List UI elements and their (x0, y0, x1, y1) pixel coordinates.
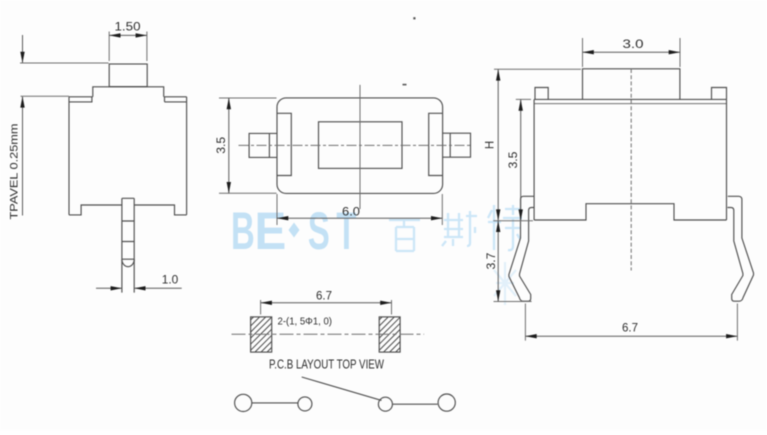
svg-text:3.5: 3.5 (508, 152, 520, 169)
svg-text:E: E (255, 201, 287, 261)
svg-text:H: H (485, 141, 497, 149)
svg-text:S: S (308, 202, 330, 261)
svg-text:6.0: 6.0 (342, 207, 360, 219)
svg-text:6.7: 6.7 (622, 323, 638, 335)
svg-text:6.7: 6.7 (316, 291, 332, 303)
svg-text:2-(1, 5Φ1, 0): 2-(1, 5Φ1, 0) (278, 316, 333, 328)
svg-text:3.0: 3.0 (623, 39, 644, 51)
svg-text:1.50: 1.50 (115, 22, 141, 34)
svg-text:3.5: 3.5 (216, 137, 228, 154)
svg-text:1.0: 1.0 (162, 275, 179, 287)
svg-text:P.C.B LAYOUT TOP VIEW: P.C.B LAYOUT TOP VIEW (269, 358, 384, 372)
svg-text:TPAVEL 0.25mm: TPAVEL 0.25mm (9, 124, 21, 220)
svg-text:3.7: 3.7 (486, 253, 498, 270)
svg-text:B: B (231, 202, 255, 261)
